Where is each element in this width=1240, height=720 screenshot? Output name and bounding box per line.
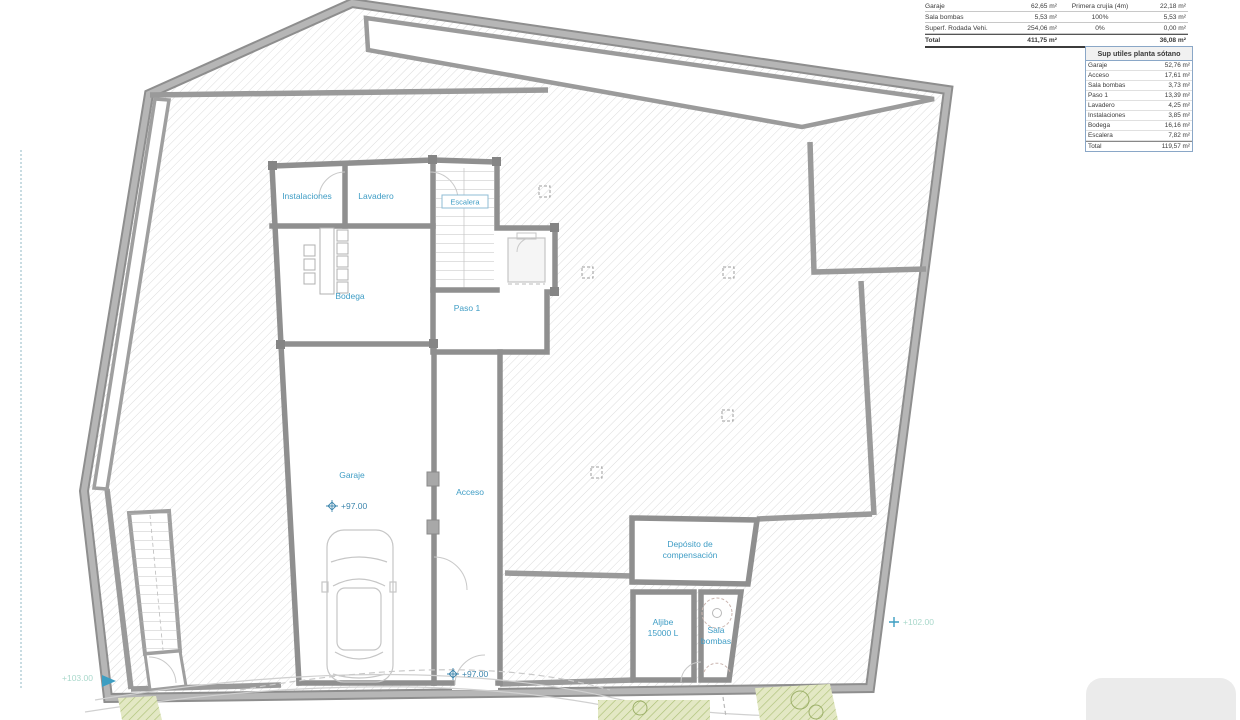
room-label-bodega: Bodega xyxy=(335,291,365,301)
table-row: Superf. Rodada Vehi. 254,06 m² 0% 0,00 m… xyxy=(925,23,1188,34)
table-row: Sala bombas 5,53 m² 100% 5,53 m² xyxy=(925,12,1188,23)
vertical-fine-print xyxy=(20,150,22,690)
table-cell: 119,57 m² xyxy=(1146,142,1190,151)
table-cell: 7,82 m² xyxy=(1146,131,1190,140)
room-label-acceso: Acceso xyxy=(456,487,484,497)
areas-computo-table: Garaje 62,65 m² Primera crujía (4m) 22,1… xyxy=(925,1,1188,48)
table-cell: Total xyxy=(1088,142,1146,151)
table-cell: 52,76 m² xyxy=(1146,61,1190,70)
table-row: Garaje 52,76 m² xyxy=(1086,61,1192,71)
room-label-garaje: Garaje xyxy=(339,470,365,480)
svg-text:+97.00: +97.00 xyxy=(462,669,489,679)
sup-utiles-table: Sup utiles planta sótano Garaje 52,76 m²… xyxy=(1085,46,1193,152)
table-row: Escalera 7,82 m² xyxy=(1086,131,1192,141)
svg-text:+103.00: +103.00 xyxy=(62,673,93,683)
table-cell: 3,85 m² xyxy=(1146,111,1190,120)
table-row: Paso 1 13,39 m² xyxy=(1086,91,1192,101)
table-row: Bodega 16,16 m² xyxy=(1086,121,1192,131)
floor-plan-canvas: Instalaciones Lavadero Escalera Bodega P… xyxy=(0,0,1240,720)
table-cell: 16,16 m² xyxy=(1146,121,1190,130)
table-cell: 22,18 m² xyxy=(1141,3,1188,10)
elevation-marker-terrain-right: +102.00 xyxy=(889,617,934,627)
room-label-sala-2: bombas xyxy=(701,636,731,646)
room-label-instalaciones: Instalaciones xyxy=(282,191,332,201)
table-row: Sala bombas 3,73 m² xyxy=(1086,81,1192,91)
table-cell: 13,39 m² xyxy=(1146,91,1190,100)
floor-plan-sheet: Instalaciones Lavadero Escalera Bodega P… xyxy=(0,0,1240,720)
room-label-escalera: Escalera xyxy=(450,198,480,207)
table-cell: 17,61 m² xyxy=(1146,71,1190,80)
table-cell: Escalera xyxy=(1088,131,1146,140)
table-cell: 5,53 m² xyxy=(1141,14,1188,21)
elevation-marker-garaje: +97.00 xyxy=(326,500,368,512)
table-cell: 4,25 m² xyxy=(1146,101,1190,110)
table-cell: 411,75 m² xyxy=(1005,37,1059,44)
interior-stair xyxy=(436,168,494,288)
table-cell: Primera crujía (4m) xyxy=(1059,3,1141,10)
table-cell: Superf. Rodada Vehi. xyxy=(925,25,1005,32)
table-row: Instalaciones 3,85 m² xyxy=(1086,111,1192,121)
table-row-total: Total 411,75 m² 36,08 m² xyxy=(925,34,1188,46)
room-label-paso1: Paso 1 xyxy=(454,303,481,313)
table-cell: 100% xyxy=(1059,14,1141,21)
table-cell: 254,06 m² xyxy=(1005,25,1059,32)
room-label-deposito-2: compensación xyxy=(663,550,718,560)
room-label-aljibe-2: 15000 L xyxy=(648,628,679,638)
table-cell: Total xyxy=(925,37,1005,44)
table-cell: Acceso xyxy=(1088,71,1146,80)
adjacent-structure xyxy=(1086,678,1236,720)
table-cell: 0% xyxy=(1059,25,1141,32)
table-row: Acceso 17,61 m² xyxy=(1086,71,1192,81)
table-cell: Garaje xyxy=(925,3,1005,10)
room-label-lavadero: Lavadero xyxy=(358,191,394,201)
elevation-marker-acceso: +97.00 xyxy=(447,668,489,680)
table-title: Sup utiles planta sótano xyxy=(1086,47,1192,61)
room-label-sala-1: Sala xyxy=(707,625,724,635)
table-cell: 0,00 m² xyxy=(1141,25,1188,32)
table-row: Garaje 62,65 m² Primera crujía (4m) 22,1… xyxy=(925,1,1188,12)
elevator-shaft xyxy=(508,233,545,284)
room-label-deposito-1: Depósito de xyxy=(667,539,713,549)
table-cell: Instalaciones xyxy=(1088,111,1146,120)
room-label-aljibe-1: Aljibe xyxy=(653,617,674,627)
table-cell: 3,73 m² xyxy=(1146,81,1190,90)
table-cell: Sala bombas xyxy=(1088,81,1146,90)
table-cell: Sala bombas xyxy=(925,14,1005,21)
table-cell: Paso 1 xyxy=(1088,91,1146,100)
table-row-total: Total 119,57 m² xyxy=(1086,141,1192,151)
table-cell: Bodega xyxy=(1088,121,1146,130)
svg-text:+97.00: +97.00 xyxy=(341,501,368,511)
table-cell: 62,65 m² xyxy=(1005,3,1059,10)
table-row: Lavadero 4,25 m² xyxy=(1086,101,1192,111)
table-cell: 36,08 m² xyxy=(1141,37,1188,44)
table-cell: 5,53 m² xyxy=(1005,14,1059,21)
svg-text:+102.00: +102.00 xyxy=(903,617,934,627)
table-cell: Garaje xyxy=(1088,61,1146,70)
table-cell: Lavadero xyxy=(1088,101,1146,110)
